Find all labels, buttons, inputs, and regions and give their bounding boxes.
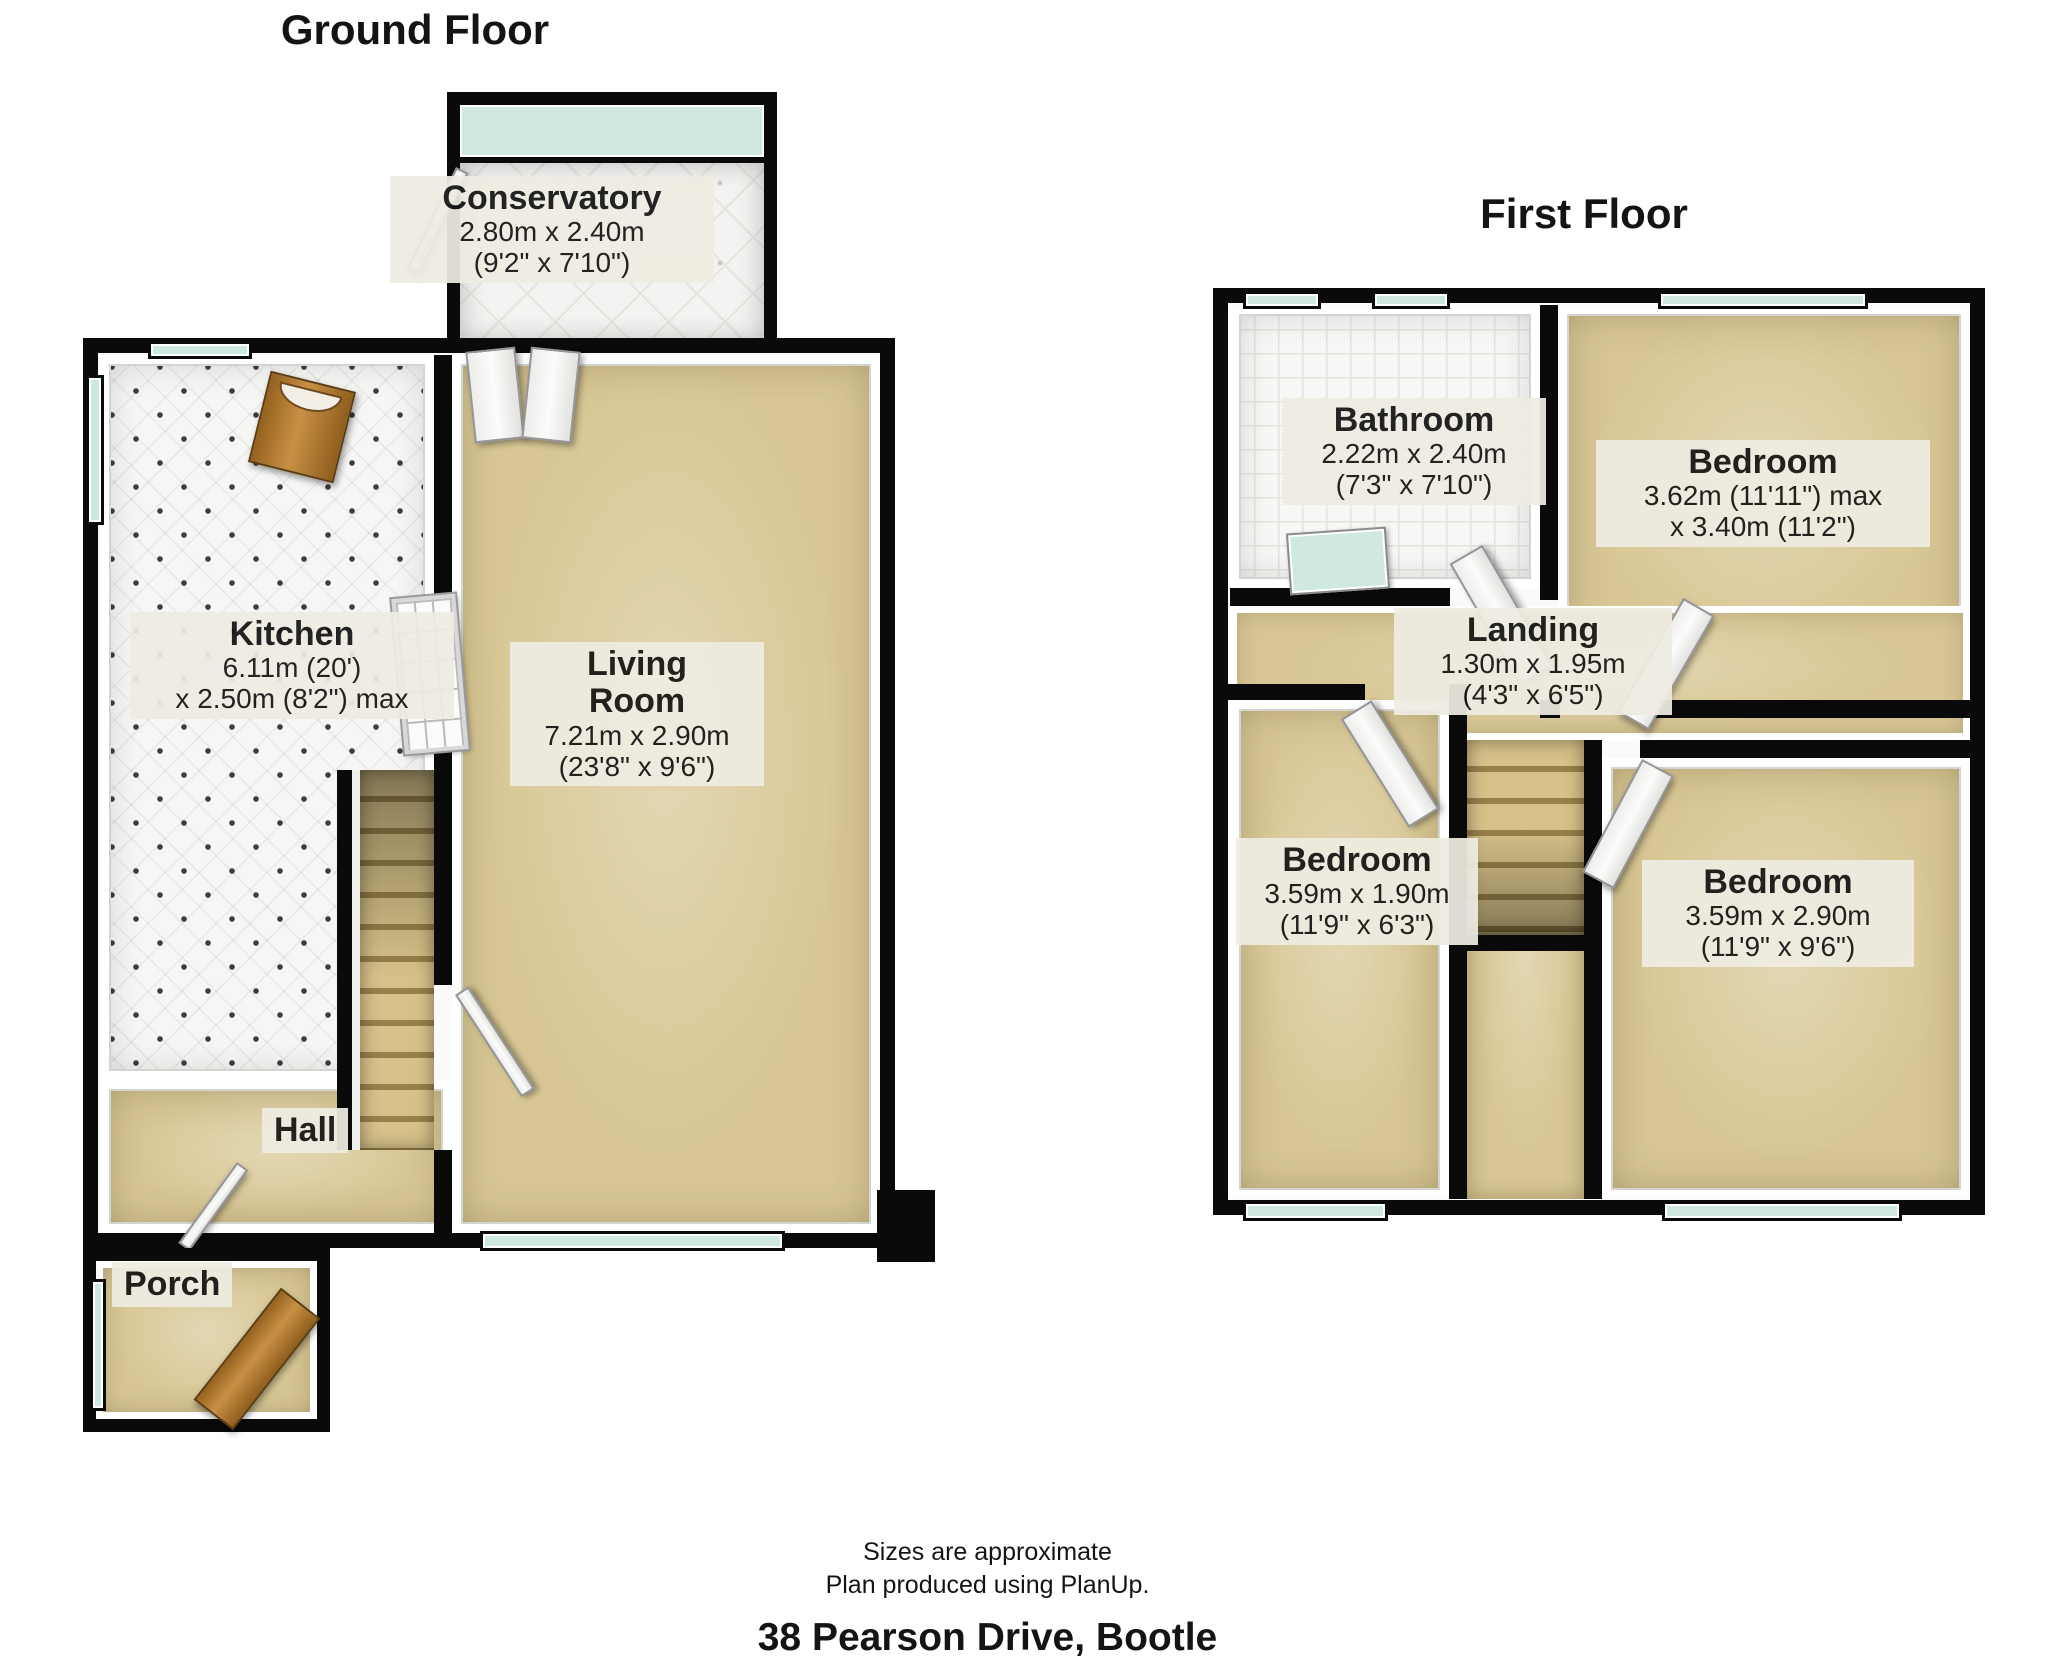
- room-label-bedroom-front-left: Bedroom 3.59m x 1.90m (11'9" x 6'3"): [1236, 838, 1478, 945]
- bedroom-front-right-floor: [1602, 758, 1970, 1199]
- room-label-bedroom-front-right: Bedroom 3.59m x 2.90m (11'9" x 9'6"): [1642, 860, 1914, 967]
- room-label-conservatory: Conservatory 2.80m x 2.40m (9'2" x 7'10"…: [390, 176, 714, 283]
- bathroom-window-right: [1372, 291, 1450, 309]
- room-label-living-room: Living Room 7.21m x 2.90m (23'8" x 9'6"): [510, 642, 764, 786]
- stairwell-bottom-wall: [1467, 935, 1584, 951]
- footer-note-sizes: Sizes are approximate: [0, 1536, 1975, 1569]
- bedroom-rear-bottom-wall: [1640, 700, 1985, 718]
- staircase-first-floor: [1467, 740, 1584, 935]
- bathroom-glass-pane: [1286, 527, 1390, 596]
- room-label-bathroom: Bathroom 2.22m x 2.40m (7'3" x 7'10"): [1282, 398, 1546, 505]
- bedroom-front-left-window: [1243, 1201, 1388, 1221]
- bedroom-front-right-left-wall: [1584, 740, 1602, 1199]
- room-label-porch: Porch: [112, 1262, 232, 1307]
- room-label-hall: Hall: [262, 1108, 348, 1153]
- room-label-kitchen: Kitchen 6.11m (20') x 2.50m (8'2") max: [130, 612, 454, 719]
- property-address: 38 Pearson Drive, Bootle: [0, 1616, 1975, 1660]
- footer-note-planup: Plan produced using PlanUp.: [0, 1569, 1975, 1602]
- floorplan-page: { "colors": { "wall": "#0a0a0a", "carpet…: [0, 0, 2048, 1658]
- bathroom-window-left: [1243, 291, 1321, 309]
- footer: Sizes are approximate Plan produced usin…: [0, 1536, 1975, 1660]
- bedroom-front-right-window: [1662, 1201, 1902, 1221]
- room-label-landing: Landing 1.30m x 1.95m (4'3" x 6'5"): [1394, 608, 1672, 715]
- bedroom-front-right-top-wall: [1640, 740, 1985, 758]
- ground-floor-title: Ground Floor: [215, 6, 615, 54]
- first-floor-title: First Floor: [1384, 190, 1784, 238]
- bedroom-front-left-top-wall: [1213, 684, 1365, 700]
- room-label-bedroom-rear: Bedroom 3.62m (11'11") max x 3.40m (11'2…: [1596, 440, 1930, 547]
- bedroom-rear-window: [1658, 291, 1868, 309]
